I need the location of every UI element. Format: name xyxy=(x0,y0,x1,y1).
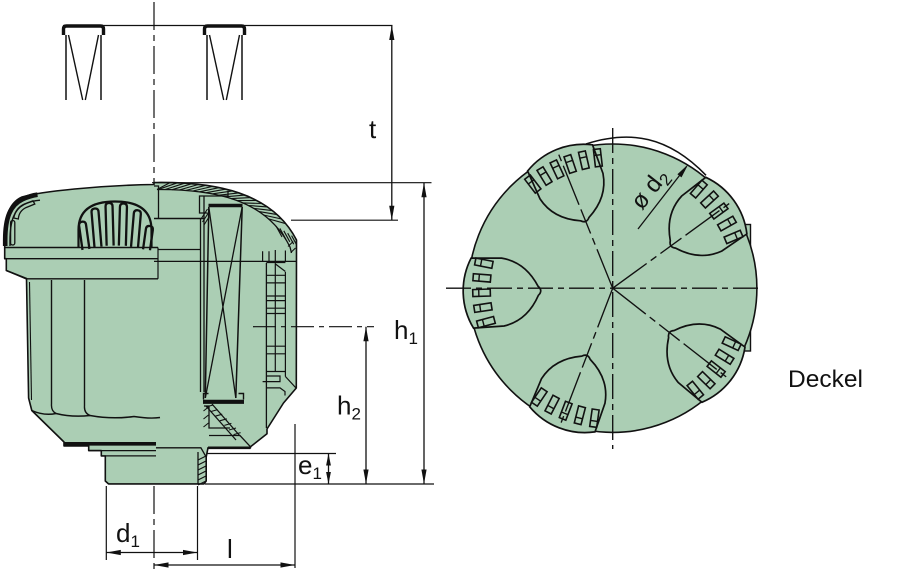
svg-text:Deckel: Deckel xyxy=(788,366,863,393)
svg-text:l: l xyxy=(227,534,233,564)
svg-text:t: t xyxy=(369,114,377,144)
